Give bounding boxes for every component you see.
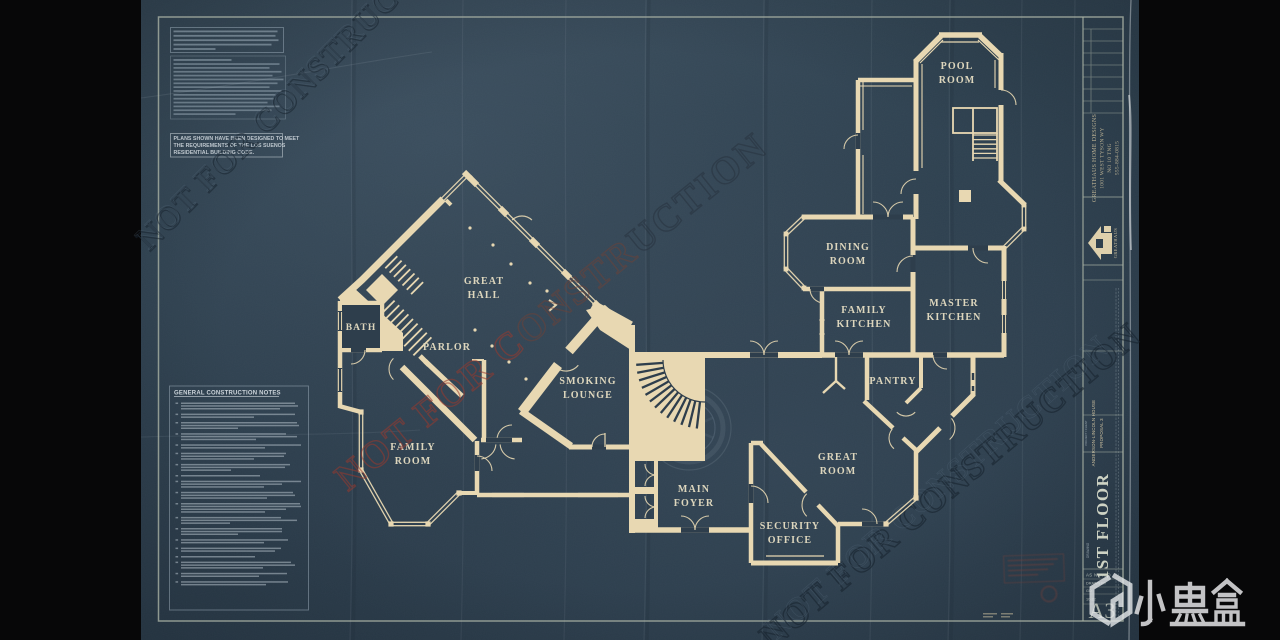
svg-text:FOYER: FOYER <box>674 498 715 509</box>
svg-text:GREAT: GREAT <box>464 276 504 287</box>
svg-text:GREATHAUS HOME DESIGNS: GREATHAUS HOME DESIGNS <box>1092 114 1098 202</box>
svg-text:FAMILY: FAMILY <box>841 305 887 316</box>
svg-text:GREATHAUS: GREATHAUS <box>1113 228 1118 259</box>
svg-text:BATH: BATH <box>346 323 377 333</box>
svg-text:ROOM: ROOM <box>820 466 857 477</box>
svg-text:OFFICE: OFFICE <box>768 535 812 546</box>
svg-text:1001 WEST TYSON WY: 1001 WEST TYSON WY <box>1100 127 1106 188</box>
svg-text:PROJECT / CLIENT: PROJECT / CLIENT <box>1084 420 1088 446</box>
svg-text:PANTRY: PANTRY <box>869 376 916 387</box>
svg-text:555-884-0815: 555-884-0815 <box>1115 141 1121 175</box>
svg-text:GREAT: GREAT <box>818 452 858 463</box>
svg-text:HALL: HALL <box>468 290 501 301</box>
svg-text:DINING: DINING <box>826 242 870 253</box>
svg-text:NO 10 TNG: NO 10 TNG <box>1107 143 1113 173</box>
svg-text:ROOM: ROOM <box>939 75 976 86</box>
svg-text:MAIN: MAIN <box>678 484 710 495</box>
svg-text:1ST FLOOR: 1ST FLOOR <box>1093 473 1112 579</box>
svg-text:ROOM: ROOM <box>830 256 867 267</box>
svg-text:POOL: POOL <box>941 61 974 72</box>
svg-text:GENERAL CONSTRUCTION NOTES: GENERAL CONSTRUCTION NOTES <box>174 391 281 397</box>
svg-text:PROPOSAL 3: PROPOSAL 3 <box>1099 418 1104 448</box>
svg-text:SMOKING: SMOKING <box>559 376 616 387</box>
svg-text:KITCHEN: KITCHEN <box>927 312 982 323</box>
svg-text:DRAWING: DRAWING <box>1086 542 1090 558</box>
svg-text:KITCHEN: KITCHEN <box>837 319 892 330</box>
svg-text:LOUNGE: LOUNGE <box>563 390 613 401</box>
svg-text:PARLOR: PARLOR <box>423 342 471 353</box>
svg-text:MASTER: MASTER <box>929 298 978 309</box>
svg-text:SECURITY: SECURITY <box>760 521 820 532</box>
svg-text:ANDERSON-LINCOLN HOUSE: ANDERSON-LINCOLN HOUSE <box>1091 400 1096 467</box>
